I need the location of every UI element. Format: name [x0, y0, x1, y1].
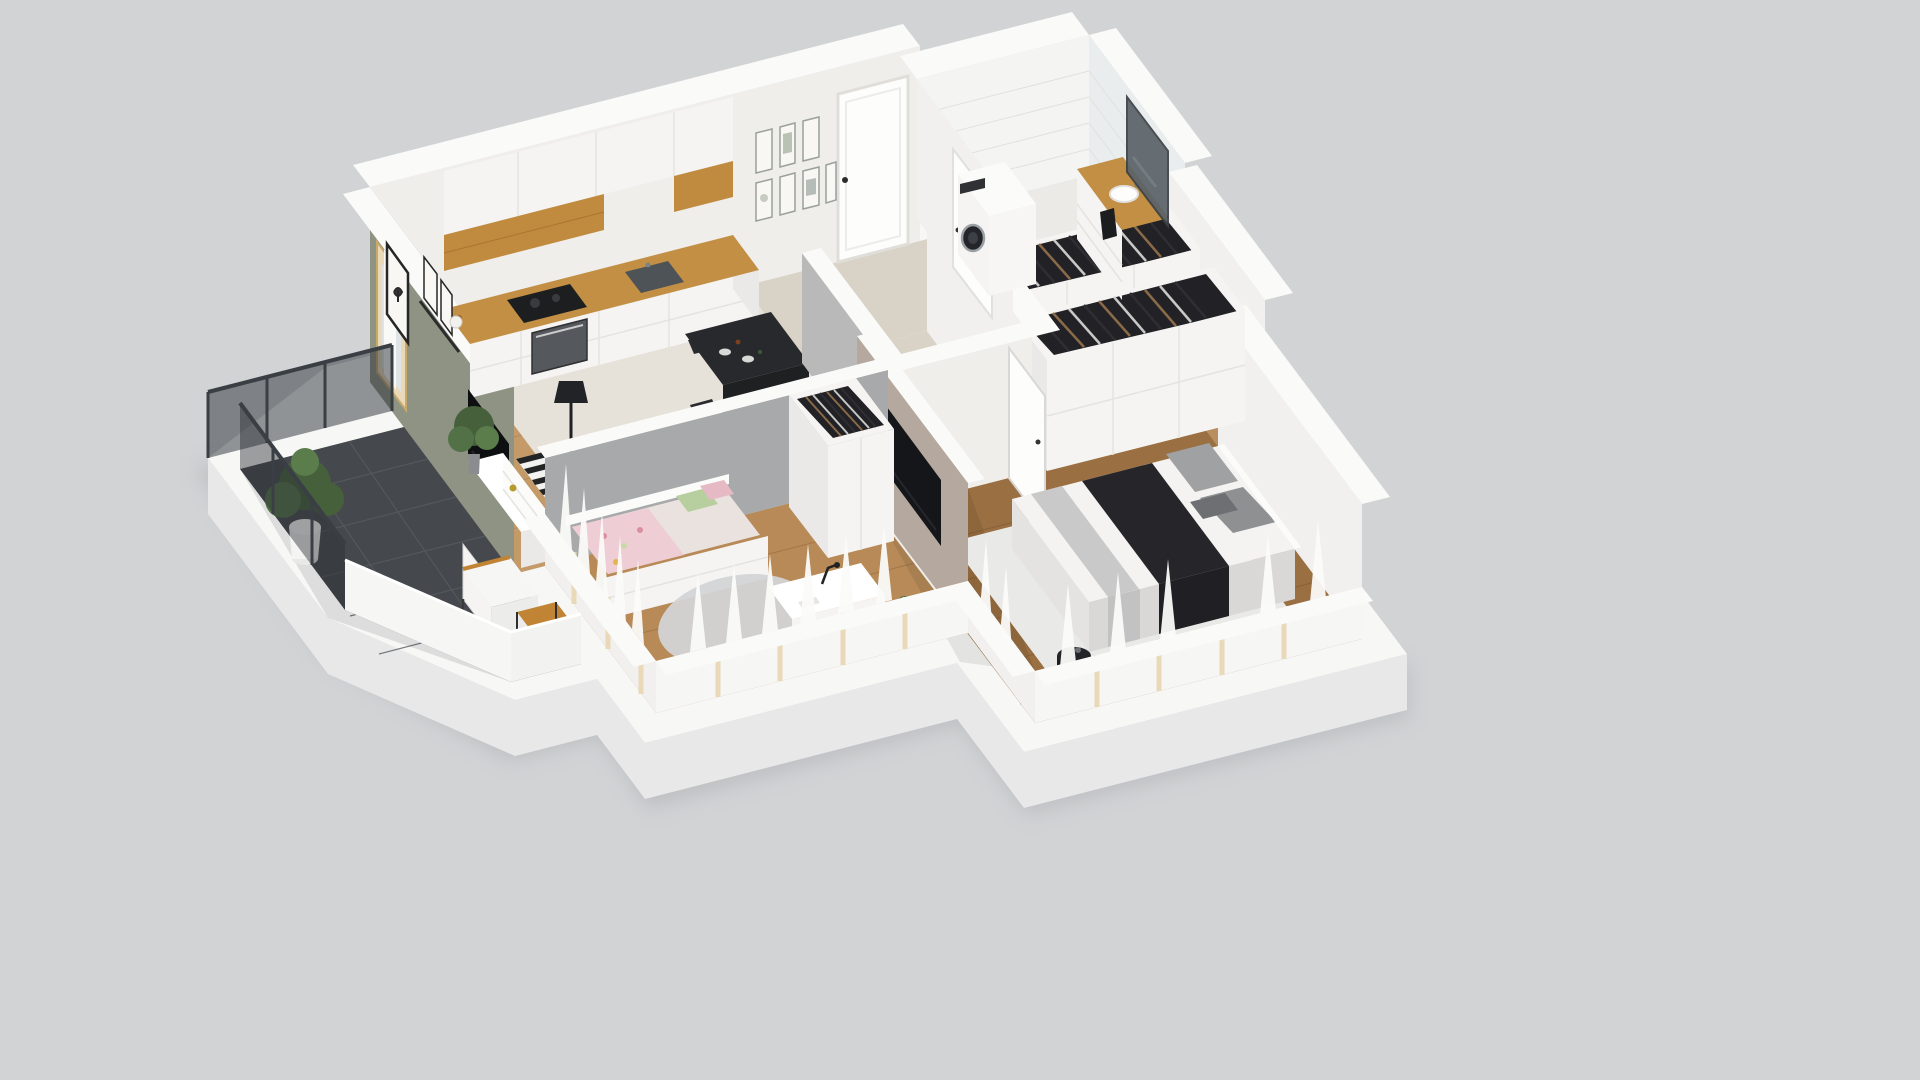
vessel-sink	[1110, 186, 1138, 202]
bottle	[736, 340, 741, 345]
gallery-frame	[826, 162, 836, 203]
gallery-frame	[803, 117, 819, 161]
console-deco	[510, 485, 517, 492]
plate	[719, 349, 731, 356]
front-door	[838, 76, 908, 262]
gallery-frame	[756, 129, 772, 173]
plant-pot	[468, 454, 480, 474]
gallery-frame	[780, 173, 795, 215]
nightstand-lamp	[1075, 647, 1081, 653]
render-canvas	[0, 0, 1920, 1080]
faucet	[646, 263, 651, 268]
floorplan-render	[0, 0, 1920, 1080]
hob-ring	[552, 294, 560, 302]
ledge-deco	[450, 316, 462, 328]
washer-side	[989, 204, 1036, 296]
bedroom-door-handle	[1036, 440, 1041, 445]
black-towel	[1100, 208, 1117, 240]
front-door-handle	[842, 177, 848, 183]
hob-ring	[530, 298, 540, 308]
plate	[742, 356, 754, 363]
bottle	[758, 350, 762, 354]
lamp-shade	[554, 381, 588, 403]
